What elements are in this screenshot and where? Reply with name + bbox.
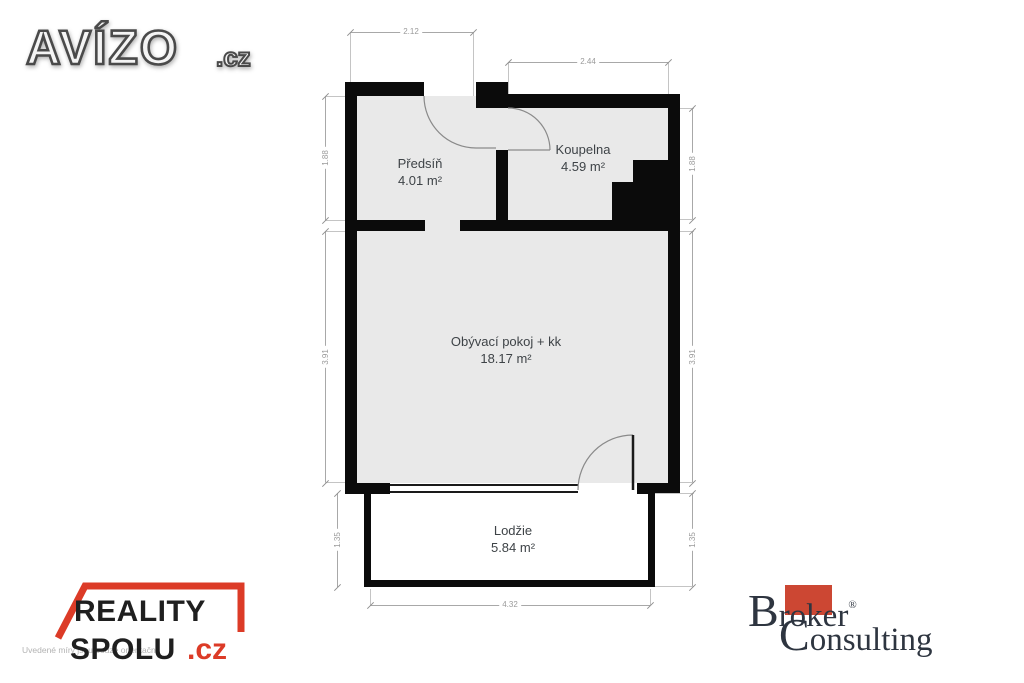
dim-extension [655, 493, 694, 494]
dim-extension [350, 32, 351, 82]
room-label-koupelna: Koupelna 4.59 m² [556, 142, 611, 176]
floorplan-page: 2.12 2.44 1.88 1.88 3.91 3.91 1.35 1.35 [0, 0, 1024, 683]
wall-lodzie-left [364, 493, 371, 587]
dim-label-mid-right: 3.91 [689, 346, 697, 368]
shaft-block-right [633, 160, 668, 222]
dim-label-bottom: 4.32 [499, 601, 521, 609]
avizo-logo-text: AVÍZO [26, 21, 179, 75]
dim-extension [325, 220, 345, 221]
passage-floor [425, 220, 460, 231]
room-area: 5.84 m² [491, 540, 535, 557]
reality-tld: .cz [187, 633, 227, 666]
wall-mid-left [345, 220, 425, 231]
dim-extension [325, 96, 345, 97]
wall-top-koupelna [496, 94, 680, 108]
broker-line2: Consulting [779, 608, 933, 661]
room-name: Obývací pokoj + kk [451, 334, 561, 351]
room-label-lodzie: Lodžie 5.84 m² [491, 523, 535, 557]
room-name: Předsíň [398, 156, 443, 173]
broker-consulting-logo: Broker® Consulting [748, 584, 1020, 676]
wall-left-outer [345, 82, 357, 493]
dim-label-upper-right: 1.88 [689, 153, 697, 175]
dim-label-top-right: 2.44 [577, 58, 599, 66]
wall-lodzie-right [648, 493, 655, 587]
broker-initial-c: C [779, 609, 810, 660]
dim-label-mid-left: 3.91 [322, 346, 330, 368]
doorway-floor [496, 108, 508, 150]
room-area: 4.01 m² [398, 173, 443, 190]
wall-right-outer [668, 94, 680, 493]
spolu-word: SPOLU [70, 633, 176, 666]
avizo-logo-tld: .cz [216, 42, 251, 72]
dim-label-lower-right: 1.35 [689, 529, 697, 551]
room-label-predsin: Předsíň 4.01 m² [398, 156, 443, 190]
room-label-living: Obývací pokoj + kk 18.17 m² [451, 334, 561, 368]
reality-spolu-logo: REALITY SPOLU .cz [14, 576, 264, 676]
dim-extension [325, 231, 345, 232]
room-name: Lodžie [491, 523, 535, 540]
dim-extension [655, 586, 694, 587]
room-area: 4.59 m² [556, 159, 611, 176]
room-name: Koupelna [556, 142, 611, 159]
shaft-block-left [612, 182, 636, 222]
broker-initial-b: B [748, 585, 779, 636]
dim-label-lower-left: 1.35 [334, 529, 342, 551]
window-living-room [390, 484, 578, 493]
wall-lodzie-bottom [364, 580, 655, 587]
dim-label-top-left: 2.12 [400, 28, 422, 36]
room-area: 18.17 m² [451, 351, 561, 368]
wall-divider-lower [496, 150, 508, 231]
broker-onsulting: onsulting [810, 622, 933, 658]
avizo-logo: AVÍZO .cz [18, 6, 298, 96]
dim-extension [508, 62, 509, 94]
wall-top-predsin [345, 82, 424, 96]
dim-extension [325, 482, 345, 483]
dim-label-upper-left: 1.88 [322, 147, 330, 169]
dim-extension [668, 62, 669, 94]
dim-extension [473, 32, 474, 96]
reality-word: REALITY [74, 595, 206, 628]
